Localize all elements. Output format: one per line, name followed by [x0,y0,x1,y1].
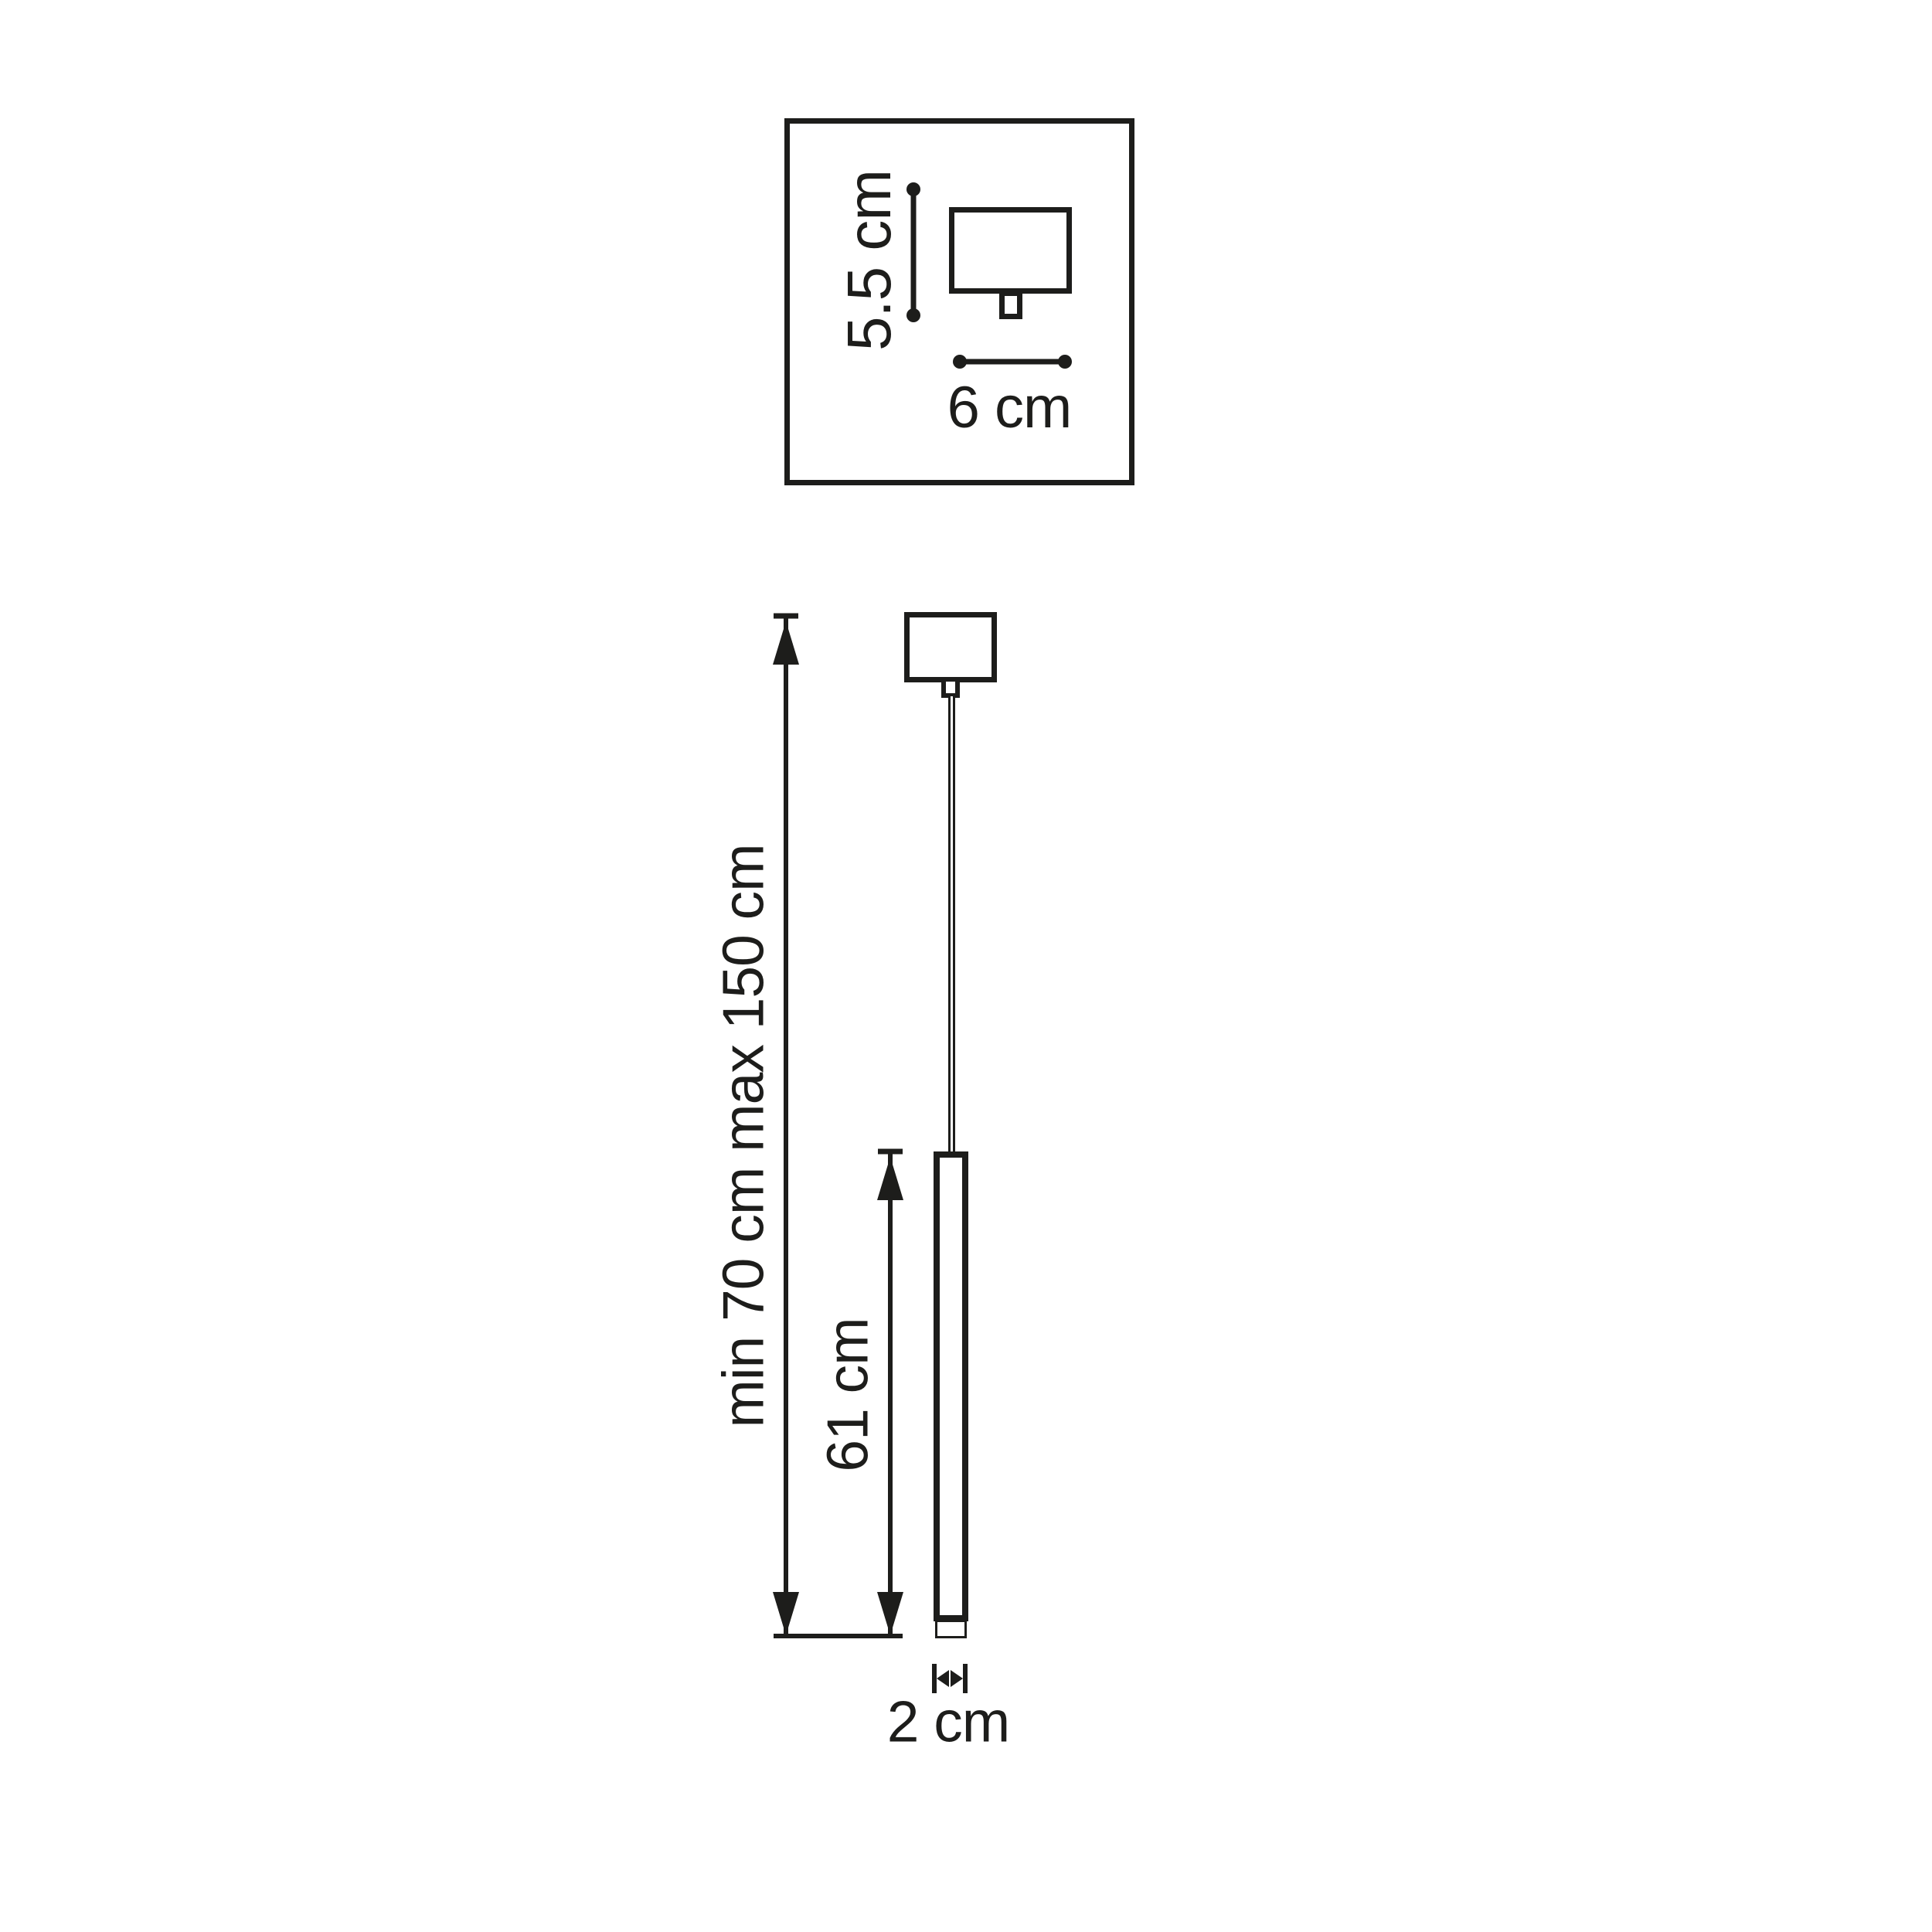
dimension-2cm [934,1664,965,1693]
dimension-61cm [877,1151,903,1636]
dimension-5-5cm [906,182,920,322]
arrow-left-icon [937,1670,949,1687]
dimension-overall-height [773,616,799,1636]
dimension-dot [953,355,967,369]
diagram-canvas: 5.5 cm 6 cm min 70 cm max 150 cm 61 cm 2… [0,0,1932,1932]
arrow-down-icon [773,1592,799,1635]
arrow-up-icon [877,1157,903,1200]
arrow-right-icon [951,1670,963,1687]
dimension-dot [906,182,920,196]
dimension-dot [1058,355,1072,369]
dimension-overlay [0,0,1932,1932]
arrow-up-icon [773,621,799,665]
dimension-6cm [953,355,1072,369]
arrow-down-icon [877,1592,903,1635]
dimension-dot [906,308,920,322]
